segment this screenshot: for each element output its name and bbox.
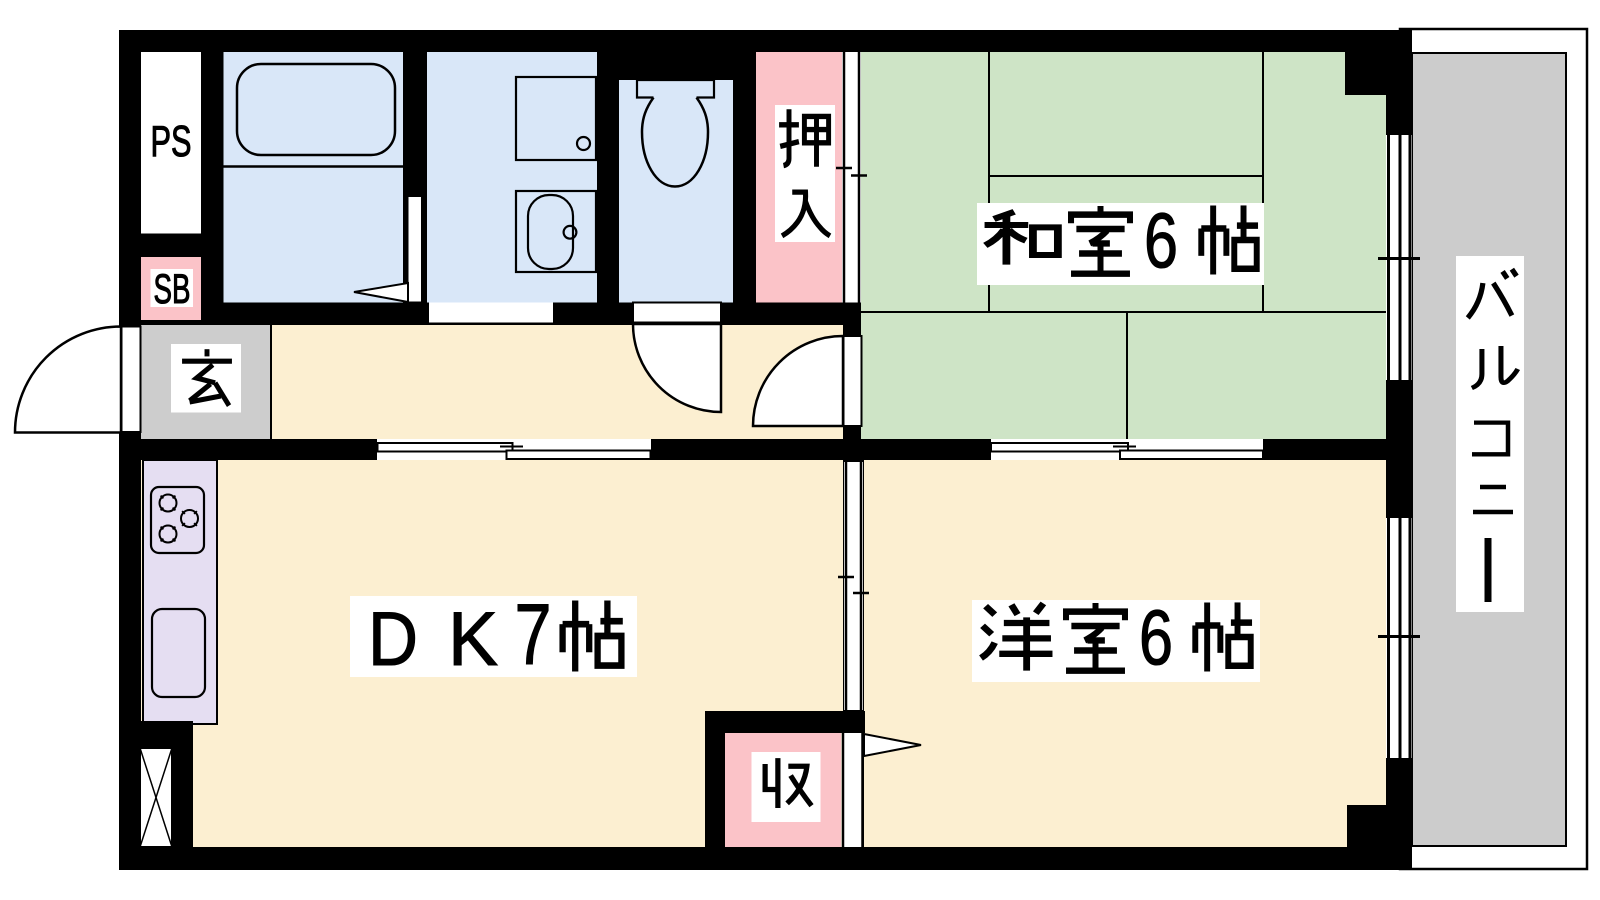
svg-text:7: 7 <box>515 587 552 683</box>
svg-text:K: K <box>448 597 498 682</box>
svg-text:PS: PS <box>151 117 192 166</box>
svg-text:6: 6 <box>1139 593 1173 681</box>
svg-text:6: 6 <box>1144 196 1178 284</box>
svg-text:D: D <box>368 597 418 682</box>
svg-text:SB: SB <box>154 265 191 312</box>
